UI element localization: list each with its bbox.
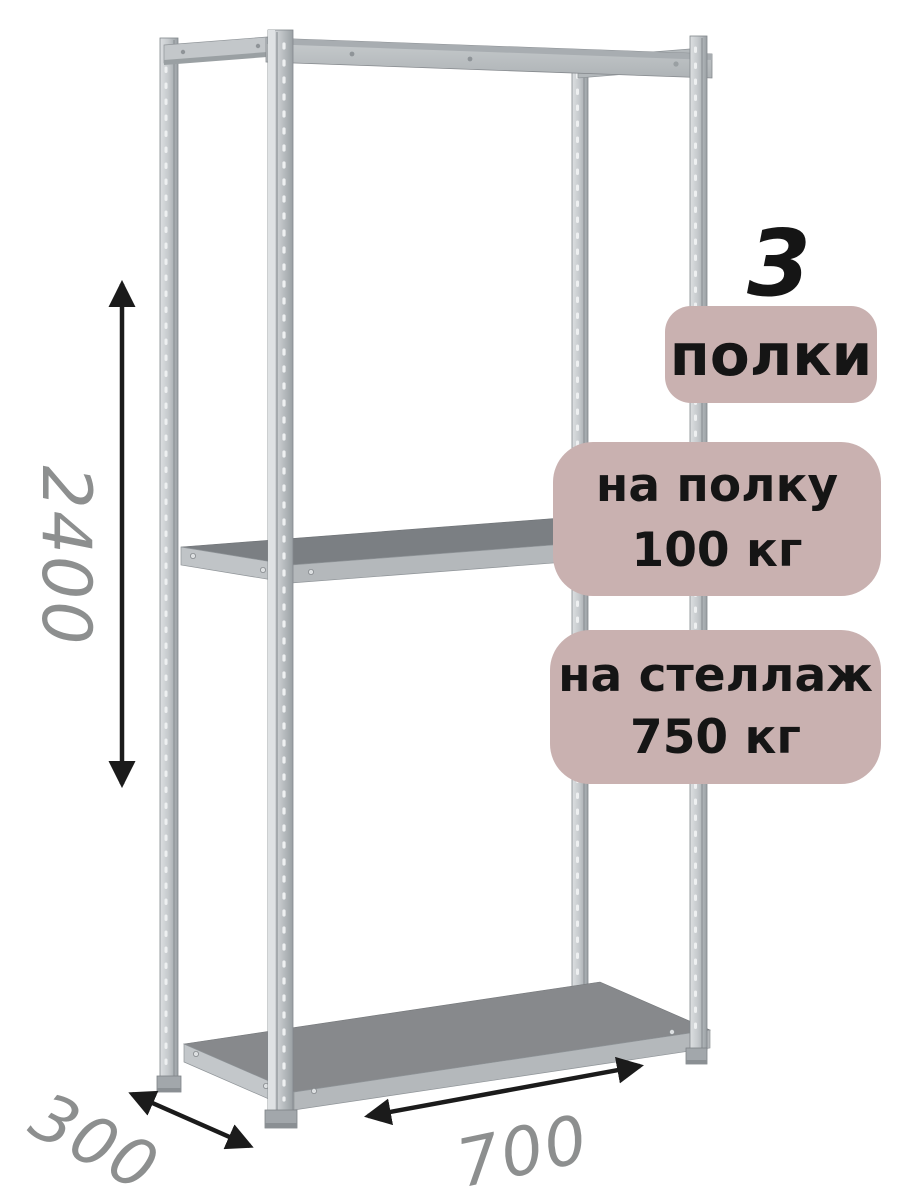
rack-load-badge: на стеллаж 750 кг — [550, 630, 881, 784]
rack-post-back-left — [157, 38, 181, 1092]
shelf-load-line1: на полку — [596, 454, 838, 519]
product-image: 2400 300 700 3 полки на полку 100 кг на … — [0, 0, 900, 1200]
depth-dimension-arrow — [132, 1094, 250, 1146]
shelf-count-label: полки — [670, 321, 872, 389]
rack-load-line2: 750 кг — [630, 707, 801, 769]
rack-illustration — [0, 0, 900, 1200]
rack-load-line1: на стеллаж — [558, 645, 873, 707]
shelf-bottom — [184, 982, 710, 1110]
shelf-load-badge: на полку 100 кг — [553, 442, 881, 596]
shelf-load-line2: 100 кг — [632, 519, 803, 584]
rack-post-front-left — [265, 30, 297, 1128]
shelf-count-badge: полки — [665, 306, 877, 403]
rack-top-frame — [164, 36, 712, 78]
shelf-count-number: 3 — [729, 213, 829, 313]
